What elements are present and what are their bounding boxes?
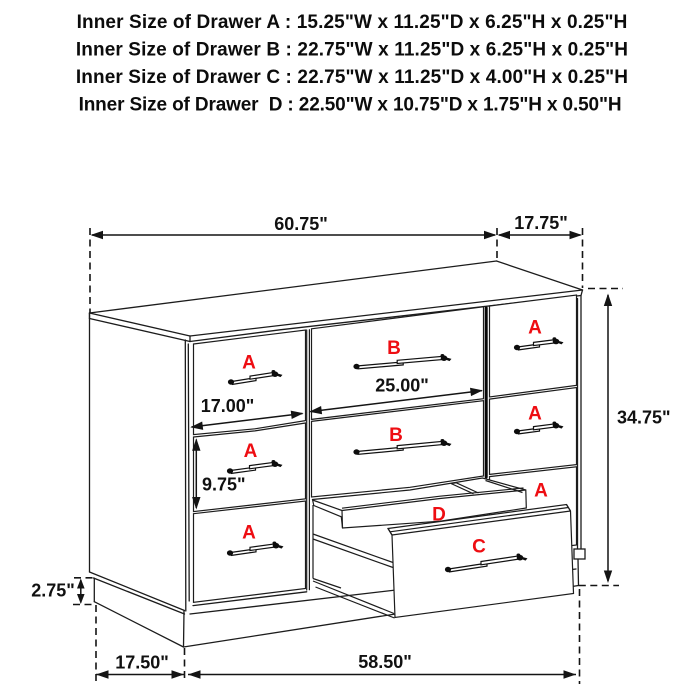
svg-text:17.50": 17.50" bbox=[115, 653, 169, 673]
svg-text:58.50": 58.50" bbox=[358, 652, 412, 672]
svg-text:B: B bbox=[389, 425, 403, 446]
svg-text:Inner Size of Drawer D : 22.5: Inner Size of Drawer D : 22.50"W x 10.75… bbox=[79, 95, 622, 116]
svg-text:25.00": 25.00" bbox=[375, 376, 429, 396]
svg-text:A: A bbox=[534, 481, 548, 502]
svg-text:A: A bbox=[528, 404, 542, 425]
svg-text:A: A bbox=[242, 353, 256, 374]
svg-text:A: A bbox=[244, 441, 258, 462]
svg-text:A: A bbox=[528, 318, 542, 339]
svg-text:C: C bbox=[472, 537, 486, 558]
svg-text:34.75": 34.75" bbox=[617, 408, 671, 428]
svg-text:17.75": 17.75" bbox=[514, 213, 568, 233]
svg-text:B: B bbox=[387, 338, 401, 359]
svg-text:17.00": 17.00" bbox=[201, 396, 255, 416]
svg-text:Inner Size of Drawer B : 22.75: Inner Size of Drawer B : 22.75"W x 11.25… bbox=[76, 40, 628, 61]
svg-text:Inner Size of Drawer A : 15.25: Inner Size of Drawer A : 15.25"W x 11.25… bbox=[77, 12, 628, 33]
svg-text:60.75": 60.75" bbox=[274, 214, 328, 234]
svg-text:9.75": 9.75" bbox=[202, 475, 246, 495]
svg-text:Inner Size of Drawer C : 22.75: Inner Size of Drawer C : 22.75"W x 11.25… bbox=[76, 67, 628, 88]
svg-text:D: D bbox=[432, 505, 446, 526]
svg-text:A: A bbox=[242, 523, 256, 544]
svg-text:2.75": 2.75" bbox=[31, 581, 75, 601]
